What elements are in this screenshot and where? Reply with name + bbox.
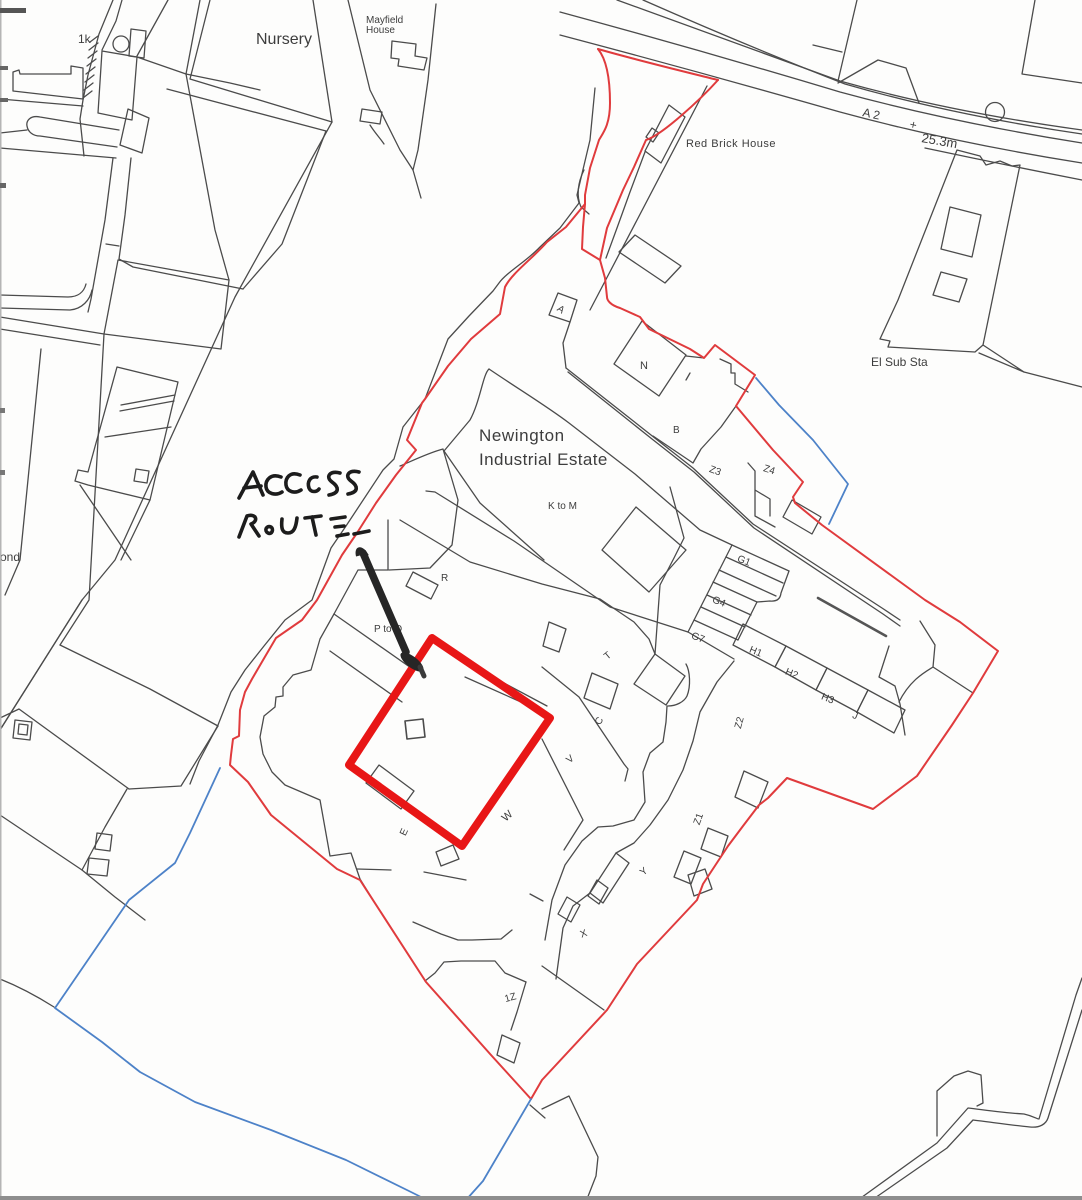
svg-text:El Sub Sta: El Sub Sta <box>871 355 928 369</box>
svg-text:Z4: Z4 <box>762 463 777 477</box>
svg-text:X: X <box>579 928 589 941</box>
svg-text:+: + <box>908 117 918 132</box>
svg-text:V: V <box>564 753 576 766</box>
svg-text:B: B <box>673 425 680 436</box>
svg-text:T: T <box>602 650 614 662</box>
svg-text:Z1: Z1 <box>692 811 706 826</box>
svg-text:Nursery: Nursery <box>256 31 312 48</box>
svg-text:Newington: Newington <box>479 426 565 445</box>
svg-text:G7: G7 <box>690 631 707 646</box>
svg-text:A 2: A 2 <box>861 105 881 122</box>
svg-text:Y: Y <box>638 865 650 878</box>
svg-text:H1: H1 <box>748 645 764 660</box>
svg-text:Industrial Estate: Industrial Estate <box>479 450 608 469</box>
svg-text:N: N <box>640 360 648 372</box>
svg-text:J: J <box>851 710 860 722</box>
svg-text:Red Brick House: Red Brick House <box>686 138 776 150</box>
svg-text:Z3: Z3 <box>708 464 723 478</box>
svg-text:H3: H3 <box>820 692 836 707</box>
svg-text:E: E <box>398 827 411 838</box>
svg-text:G1: G1 <box>736 554 753 569</box>
svg-text:C: C <box>593 715 606 727</box>
svg-text:R: R <box>441 573 448 584</box>
svg-text:W: W <box>500 808 516 824</box>
svg-text:House: House <box>366 25 395 36</box>
svg-text:ond: ond <box>0 550 20 564</box>
svg-text:1Z: 1Z <box>503 991 517 1005</box>
svg-text:K to M: K to M <box>548 501 577 512</box>
svg-text:Z2: Z2 <box>733 715 747 730</box>
svg-text:A: A <box>555 303 567 316</box>
svg-text:G4: G4 <box>711 595 728 610</box>
svg-text:1k: 1k <box>78 32 92 46</box>
